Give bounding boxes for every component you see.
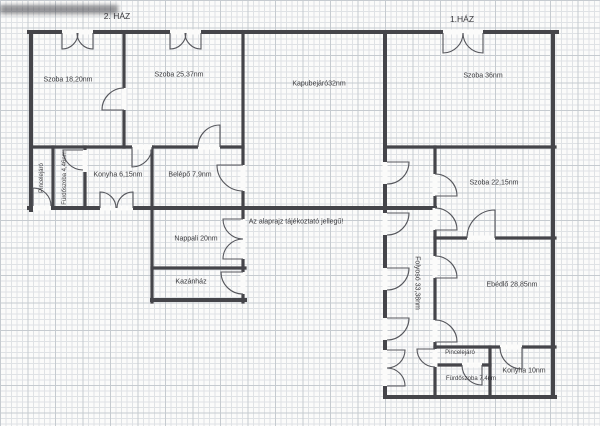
room-label-belepo: Belépő 7,9nm [168,172,211,179]
door-icon [102,88,124,110]
floorplan-canvas: 2. HÁZ 1.HÁZ Szoba 18,20nm Szoba 25,37nm… [0,0,600,426]
room-label-konyha-left: Konyha 6,15nm [93,172,142,179]
room-label-pincelejaro-right: Pincelejáró [445,350,475,356]
room-label-kapubejaro: Kapubejáró32nm [292,81,345,88]
door-icon [387,162,409,184]
double-door-icon [443,33,463,53]
door-icon [435,174,457,196]
double-door-icon [223,239,243,259]
double-door-icon [387,368,405,386]
room-label-kazanhaz: Kazánház [175,279,206,286]
floorplan-drawing [0,0,600,426]
room-label-furdoszoba-right: Fürdőszoba 7,4nm [446,376,496,382]
double-door-icon [387,350,405,368]
door-icon [500,347,522,369]
window-icon [185,33,201,49]
door-icon [462,365,482,385]
door-icon [221,272,243,294]
house2-title: 2. HÁZ [104,12,130,21]
door-icon [417,349,435,367]
room-label-folyoso: Folyosó 33,38nm [414,256,421,310]
door-icon [132,147,152,167]
window-icon [77,33,93,49]
room-label-szoba-18: Szoba 18,20nm [43,77,92,84]
room-label-konyha-right: Konyha 10nm [502,368,545,375]
room-label-pincelejaro-left: Pincelejáró [39,163,45,193]
door-icon [435,208,457,230]
window-icon [62,33,78,49]
room-label-szoba-25: Szoba 25,37nm [154,72,203,79]
double-door-icon [463,33,483,53]
door-icon [435,320,457,342]
door-icon [467,210,495,238]
room-label-ebedlo: Ebédlő 28,85nm [487,282,538,289]
disclaimer-note: Az alaprajz tájékoztató jellegű! [249,219,344,226]
door-icon [198,125,220,147]
door-icon [387,268,409,290]
room-label-nappali: Nappali 20nm [174,236,217,243]
door-icon [387,213,409,235]
door-icon [217,165,243,191]
room-label-furdoszoba-left: Fürdőszoba 4,46nm [62,151,68,204]
double-door-icon [223,219,243,239]
door-icon [387,318,409,340]
room-label-szoba-22: Szoba 22,15nm [469,180,518,187]
house1-title: 1.HÁZ [450,15,474,24]
window-icon [170,33,186,49]
door-icon [435,256,457,278]
room-label-szoba-36: Szoba 36nm [463,73,502,80]
